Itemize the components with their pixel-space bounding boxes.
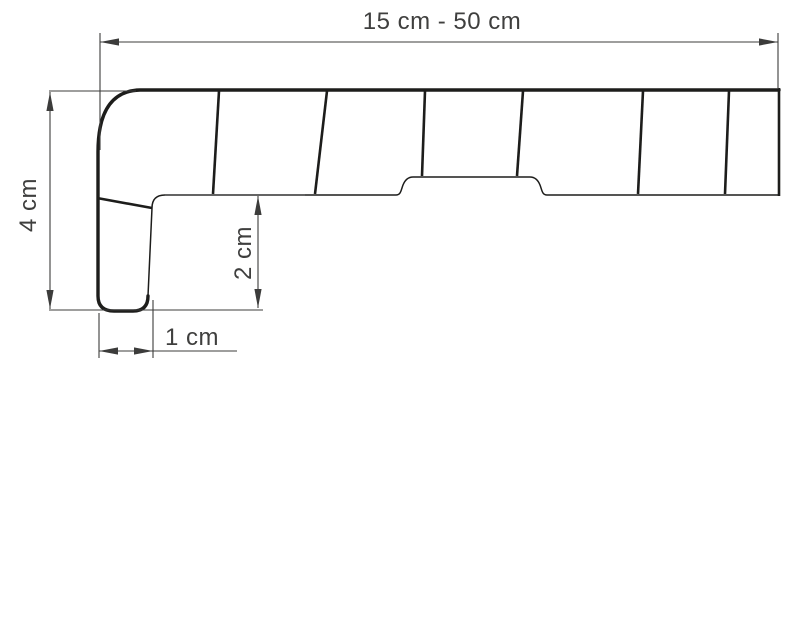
rib-line-1 [213,91,219,194]
arrowhead-up [254,196,261,215]
dimension-front-nose-width: 1 cm [99,300,237,358]
dimension-label-front-nose-width: 1 cm [165,324,219,351]
dimension-front-nose-drop: 2 cm [165,195,305,308]
arrowhead-up [46,92,53,111]
rib-line-2 [315,91,327,194]
dimension-overall-height: 4 cm [15,91,263,310]
rib-line-5 [638,91,643,194]
rib-line-4 [517,91,523,176]
rib-line-6 [725,91,729,194]
internal-ribs [213,91,729,194]
drawing-canvas: 15 cm - 50 cm 4 cm 2 cm 1 cm [0,0,800,636]
arrowhead-right [759,38,778,45]
dimension-label-front-nose-drop: 2 cm [230,226,257,280]
dimension-label-overall-height: 4 cm [15,178,42,232]
profile-outer-edge [98,90,779,311]
arrowhead-down [254,289,261,308]
sill-cross-section-diagram: 15 cm - 50 cm 4 cm 2 cm 1 cm [0,0,800,636]
arrowhead-down [46,290,53,309]
nose-inner-wall [97,198,152,208]
arrowhead-left [99,347,118,354]
dimension-label-overall-width: 15 cm - 50 cm [363,8,522,35]
dimension-overall-width: 15 cm - 50 cm [100,8,778,150]
profile-shape [97,88,779,311]
arrowhead-left [100,38,119,45]
arrowhead-right [134,347,153,354]
rib-line-3 [422,91,425,176]
